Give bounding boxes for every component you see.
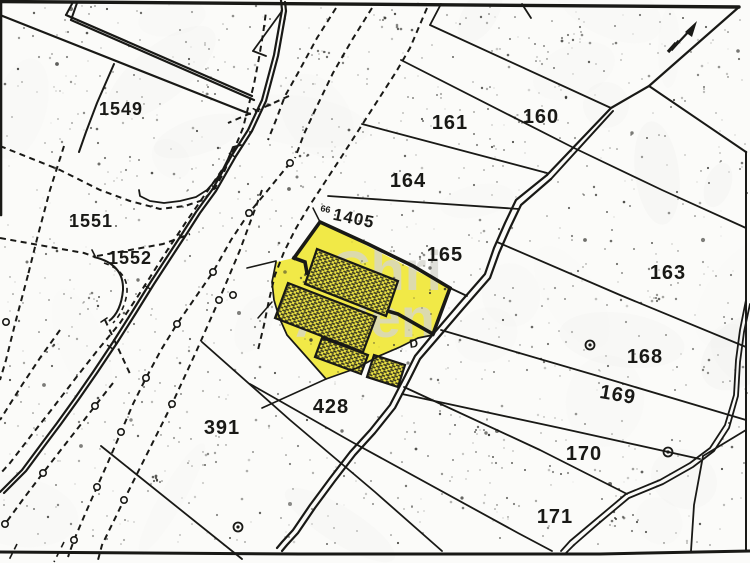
svg-text:168: 168: [627, 346, 663, 368]
svg-text:164: 164: [390, 170, 426, 192]
svg-text:1552: 1552: [108, 248, 152, 268]
svg-text:163: 163: [650, 262, 686, 284]
svg-text:165: 165: [427, 244, 463, 266]
svg-text:171: 171: [537, 506, 573, 528]
svg-text:161: 161: [432, 112, 468, 134]
svg-text:428: 428: [313, 396, 349, 418]
svg-text:66: 66: [320, 203, 332, 215]
svg-text:160: 160: [523, 106, 559, 128]
svg-text:170: 170: [566, 443, 602, 465]
svg-text:391: 391: [204, 417, 240, 439]
svg-text:1549: 1549: [99, 99, 143, 119]
svg-text:1551: 1551: [69, 211, 113, 231]
